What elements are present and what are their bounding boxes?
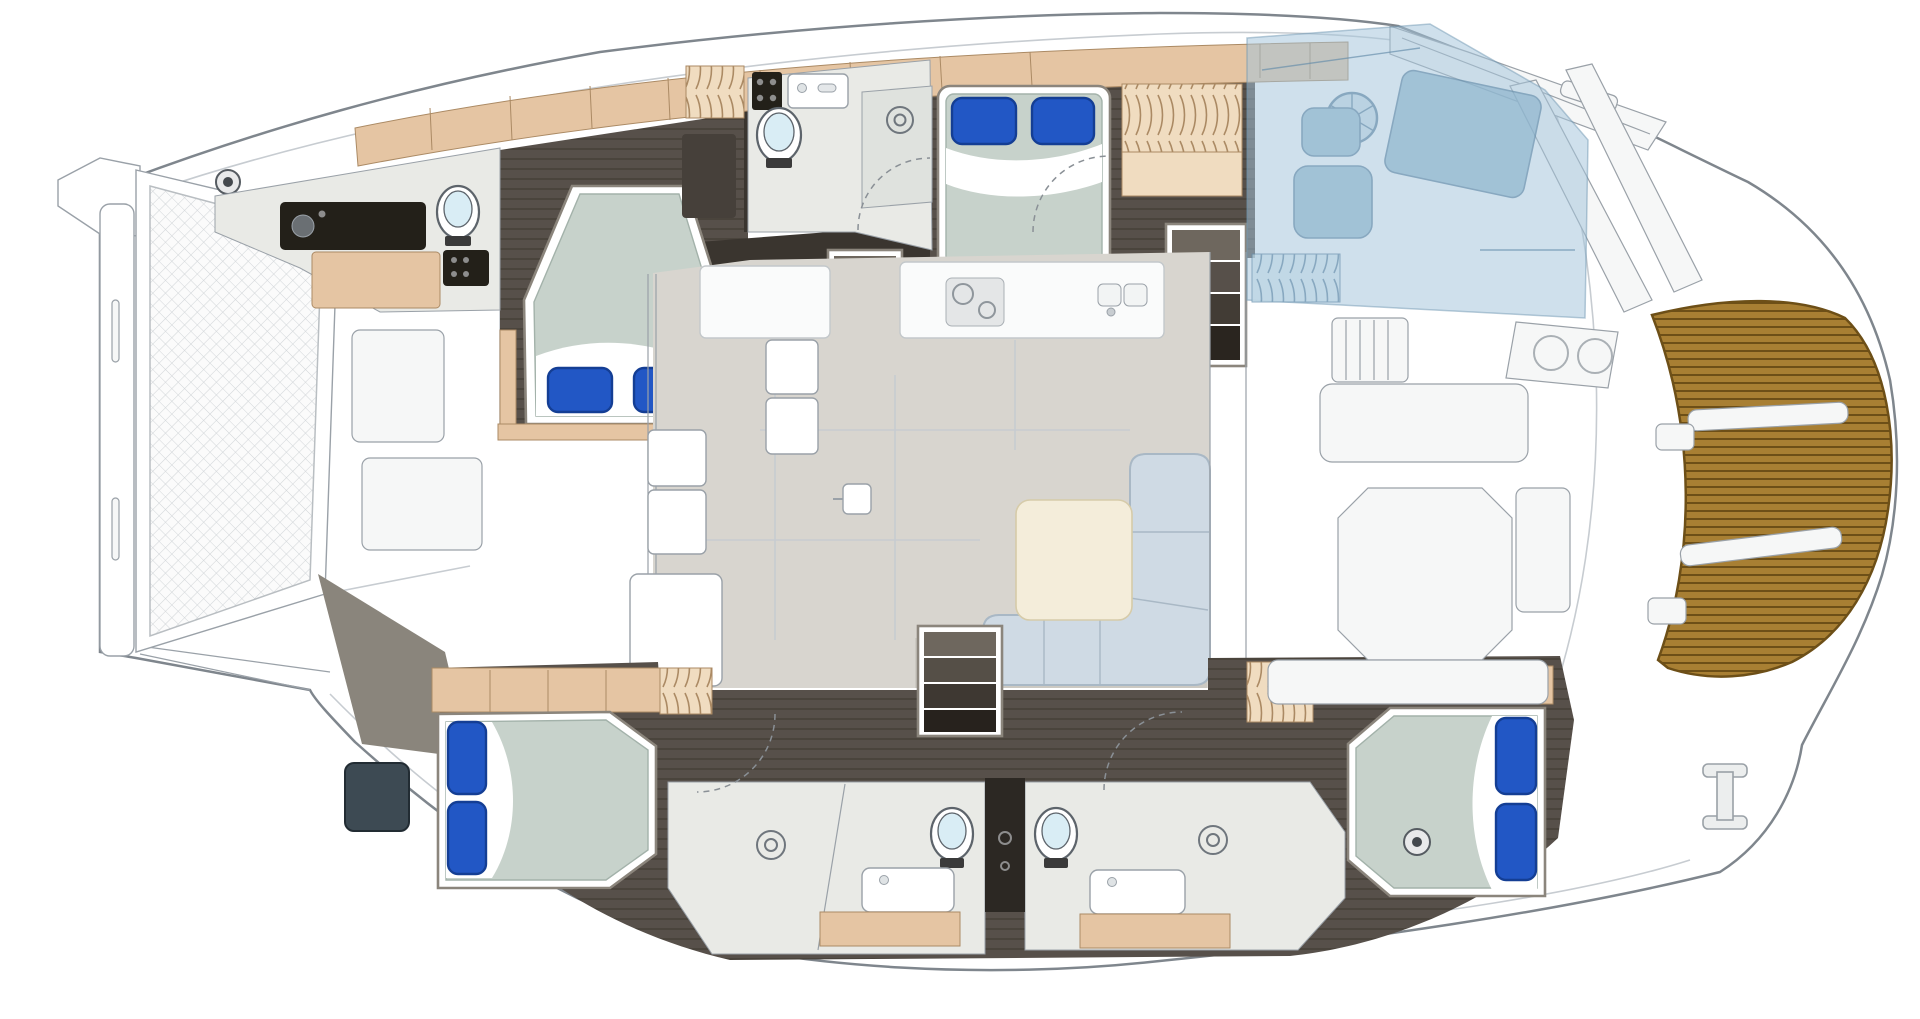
wood-vanity [312, 252, 440, 308]
starboard-aft-companionway [918, 626, 1002, 736]
salon [630, 252, 1246, 690]
deck-fitting-icon [1404, 829, 1430, 855]
deck-vent-panel [1506, 322, 1618, 388]
vanity-cabinet [1080, 914, 1230, 948]
transom-seat [1268, 660, 1548, 704]
slatted-bench-back [1332, 318, 1408, 382]
helm-overlay [1247, 24, 1588, 318]
hull-window-port-bow [345, 763, 409, 831]
round-sink-icon [292, 215, 314, 237]
starboard-fwd-wood-band [432, 668, 660, 712]
yacht-floorplan-page [0, 0, 1920, 1019]
salon-cabinet [648, 430, 706, 486]
coil-locker-starboard-forward [660, 668, 712, 714]
heads-divider-wall [985, 778, 1025, 912]
appliance-unit [443, 250, 489, 286]
galley-counter-left [700, 266, 830, 338]
starboard-aft-head [1025, 782, 1345, 950]
cooktop-icon [946, 278, 1004, 326]
catamaran-deck-plan [0, 0, 1920, 1019]
starboard-forward-bed [438, 712, 656, 888]
port-aft-cabin-bed [938, 86, 1110, 272]
coil-front-locker-port [686, 66, 744, 118]
appliance-burners [752, 72, 782, 110]
fridge-unit [766, 340, 818, 394]
overlay-slatted-bench [1252, 254, 1340, 302]
vanity-cabinet [820, 912, 960, 946]
cockpit-table [1338, 488, 1512, 660]
helm-seat-back [1302, 108, 1360, 156]
fridge-unit [766, 398, 818, 454]
forward-crossbeam [100, 204, 134, 656]
cabin-storage [682, 134, 736, 218]
windlass-icon [216, 170, 240, 194]
salon-table [1016, 500, 1132, 620]
port-shower-room [748, 60, 932, 250]
sink-icon [862, 868, 954, 912]
starboard-forward-head [668, 782, 985, 954]
hanging-locker-port-aft [1122, 84, 1242, 196]
salon-cabinet [648, 490, 706, 554]
starboard-aft-bed [1348, 708, 1545, 896]
cockpit-side-seat [1516, 488, 1570, 612]
helm-seat [1294, 166, 1372, 238]
sink-icon [788, 74, 848, 108]
cockpit-bench [1320, 384, 1528, 462]
sink-icon [1090, 870, 1185, 914]
